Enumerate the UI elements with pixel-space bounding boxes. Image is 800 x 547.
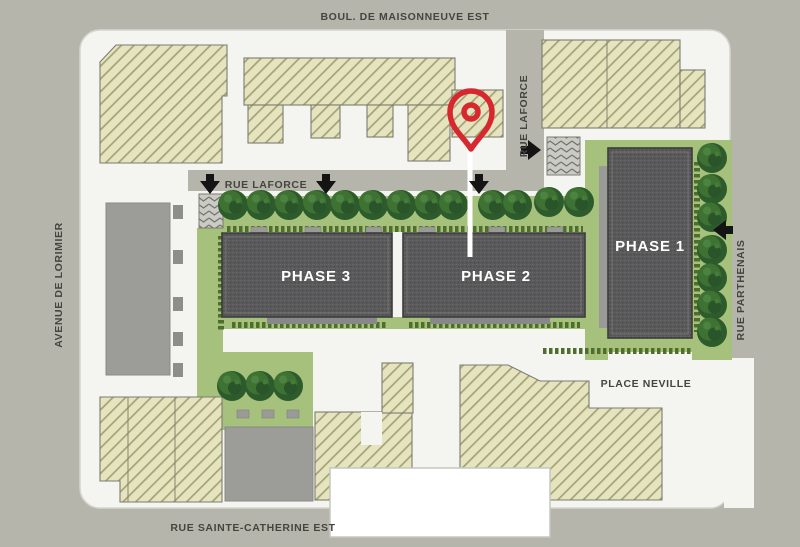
site-plan: BOUL. DE MAISONNEUVE EST RUE LAFORCE RUE…	[0, 0, 800, 547]
street-label-maisonneuve: BOUL. DE MAISONNEUVE EST	[321, 11, 490, 23]
lawn-phase1-south	[608, 338, 692, 352]
building-white-footprint	[330, 468, 550, 537]
building-northeast	[542, 40, 705, 128]
building-notch	[361, 412, 382, 445]
phase-3-label: PHASE 3	[281, 268, 351, 285]
street-label-laforce-horizontal: RUE LAFORCE	[225, 179, 307, 191]
street-label-lorimier: AVENUE DE LORIMIER	[53, 222, 65, 348]
phase-1-label: PHASE 1	[615, 238, 685, 255]
building-courtyard-gray	[225, 427, 313, 501]
city-block-extension	[724, 358, 754, 508]
parking-ramp-east	[547, 137, 580, 175]
street-label-parthenais: RUE PARTHENAIS	[735, 240, 747, 341]
street-label-laforce-vertical: RUE LAFORCE	[518, 75, 530, 157]
phase-2-label: PHASE 2	[461, 268, 531, 285]
site-plan-canvas: BOUL. DE MAISONNEUVE EST RUE LAFORCE RUE…	[0, 0, 800, 547]
building-northwest	[100, 45, 227, 163]
label-place-neville: PLACE NEVILLE	[601, 378, 692, 390]
street-label-sainte-catherine: RUE SAINTE-CATHERINE EST	[170, 522, 335, 534]
building-lorimier-gray	[106, 203, 170, 375]
